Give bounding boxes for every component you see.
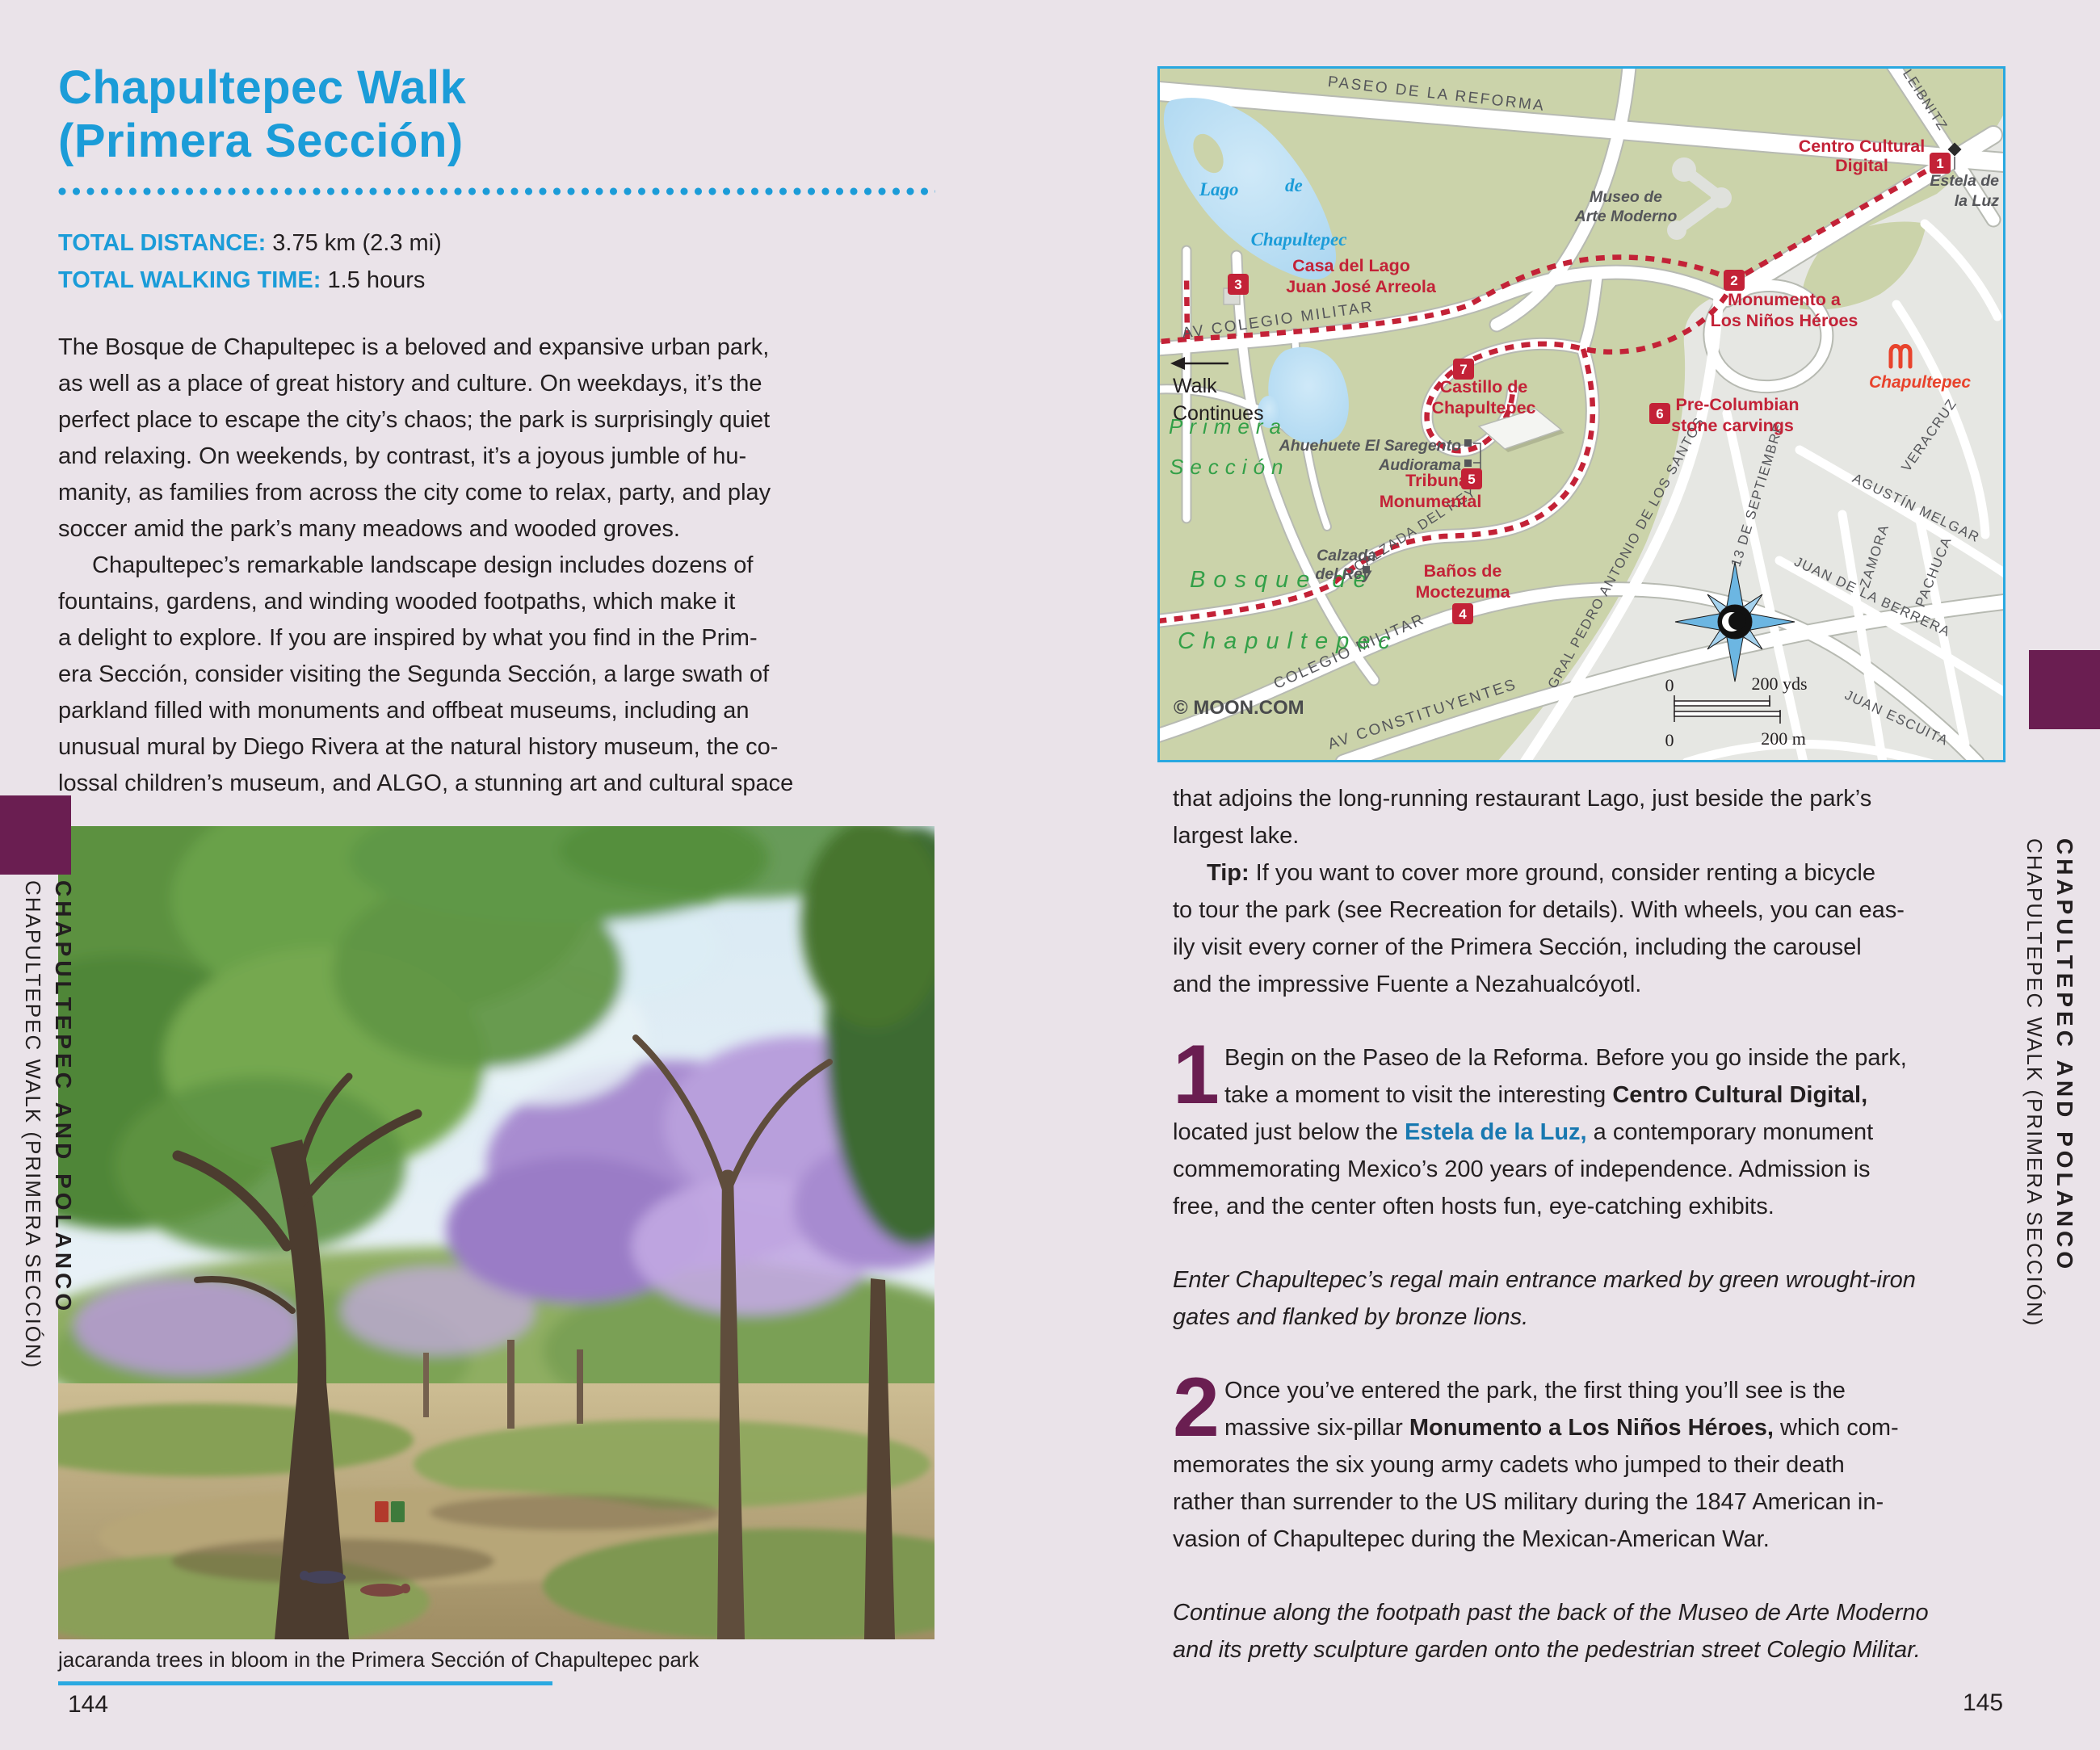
intro-paragraph-1: The Bosque de Chapultepec is a beloved a… (58, 329, 947, 548)
poi-museo-2: Arte Moderno (1574, 208, 1678, 225)
poi-estela-2: la Luz (1955, 192, 2000, 210)
svg-text:5: 5 (1468, 472, 1475, 487)
step-2: 2 Once you’ve entered the park, the firs… (1173, 1372, 2018, 1558)
poi-castillo-2: Chapultepec (1431, 398, 1535, 418)
sidebar-right: CHAPULTEPEC AND POLANCO CHAPULTEPEC WALK… (2019, 838, 2079, 1327)
svg-text:4: 4 (1459, 606, 1467, 622)
poi-banos-1: Baños de (1424, 561, 1502, 581)
chapter-tab-right (2029, 650, 2100, 729)
poi-castillo-1: Castillo de (1440, 377, 1528, 397)
poi-museo-1: Museo de (1590, 188, 1662, 206)
walk-directions: that adjoins the long-running restaurant… (1173, 780, 2018, 1668)
svg-text:Walk: Walk (1173, 375, 1217, 397)
marker-5: 5 (1461, 468, 1482, 489)
step-1-number: 1 (1173, 1039, 1224, 1110)
stat-distance: TOTAL DISTANCE: 3.75 km (2.3 mi) (58, 225, 442, 262)
lake-label-chapultepec: Chapultepec (1251, 229, 1347, 250)
scale-zero-m: 0 (1665, 730, 1674, 750)
caption-rule (58, 1681, 552, 1685)
svg-text:7: 7 (1459, 362, 1467, 377)
marker-2: 2 (1724, 270, 1745, 291)
walk-route-map: PASEO DE LA REFORMA LEIBNITZ AV COLEGIO … (1157, 66, 2005, 762)
poi-banos-2: Moctezuma (1415, 582, 1510, 602)
title-dotted-rule (58, 187, 935, 196)
marker-7: 7 (1453, 359, 1474, 380)
step-2-number: 2 (1173, 1372, 1224, 1443)
step-1-text: Begin on the Paseo de la Reforma. Before… (1173, 1039, 2018, 1225)
transition-italic-1: Enter Chapultepec’s regal main entrance … (1173, 1261, 2018, 1336)
scale-200-m: 200 m (1761, 728, 1806, 749)
guidebook-spread: Chapultepec Walk(Primera Sección) TOTAL … (0, 0, 2100, 1750)
lake-label-lago: Lago (1199, 179, 1239, 199)
sidebar-chapter-right: CHAPULTEPEC AND POLANCO (2050, 838, 2079, 1327)
stat-time: TOTAL WALKING TIME: 1.5 hours (58, 262, 442, 299)
page-number-right: 145 (1963, 1689, 2003, 1717)
sidebar-section-left: CHAPULTEPEC WALK (PRIMERA SECCIÓN) (18, 880, 48, 1369)
foliage (58, 826, 934, 1440)
step-2-text: Once you’ve entered the park, the first … (1173, 1372, 2018, 1558)
svg-text:6: 6 (1656, 406, 1663, 422)
poi-centro-cultural-2: Digital (1835, 156, 1888, 175)
scale-zero-yds: 0 (1665, 675, 1674, 695)
poi-tribuna-1: Tribuna (1405, 471, 1469, 490)
continuation-paragraph: that adjoins the long-running restaurant… (1173, 780, 2018, 854)
poi-tribuna-2: Monumental (1380, 492, 1482, 511)
area-chapultepec: Chapultepec (1178, 628, 1398, 654)
sidebar-left: CHAPULTEPEC AND POLANCO CHAPULTEPEC WALK… (18, 880, 78, 1369)
scale-200-yds: 200 yds (1751, 674, 1807, 694)
chapter-tab-left (0, 795, 71, 875)
poi-calzada-1: Calzada (1317, 547, 1376, 564)
poi-precolumbian-1: Pre-Columbian (1676, 395, 1800, 414)
area-seccion: Sección (1170, 455, 1290, 479)
lake-label-de: de (1285, 175, 1303, 195)
svg-text:1: 1 (1936, 156, 1943, 171)
svg-text:Continues: Continues (1173, 402, 1264, 425)
poi-centro-cultural-1: Centro Cultural (1799, 136, 1925, 156)
intro-paragraph-2: Chapultepec’s remarkable landscape desig… (58, 548, 947, 802)
poi-metro-chapultepec: Chapultepec (1869, 373, 1971, 392)
marker-4: 4 (1452, 603, 1473, 624)
poi-monumento-2: Los Niños Héroes (1711, 311, 1858, 330)
page-number-left: 144 (68, 1691, 108, 1719)
poi-ahuehuete: Ahuehuete El Saregento (1279, 437, 1461, 455)
map-attribution: © MOON.COM (1174, 697, 1304, 719)
jacaranda-photo (58, 826, 934, 1639)
trash-bin-green (391, 1501, 405, 1522)
intro-text: The Bosque de Chapultepec is a beloved a… (58, 329, 947, 802)
page-title: Chapultepec Walk(Primera Sección) (58, 61, 466, 168)
poi-precolumbian-2: stone carvings (1671, 416, 1794, 435)
sidebar-section-right: CHAPULTEPEC WALK (PRIMERA SECCIÓN) (2019, 838, 2050, 1327)
step-1: 1 Begin on the Paseo de la Reforma. Befo… (1173, 1039, 2018, 1225)
tip-paragraph: Tip: If you want to cover more ground, c… (1173, 854, 2018, 1003)
marker-1: 1 (1930, 153, 1951, 174)
marker-6: 6 (1649, 403, 1670, 424)
svg-text:3: 3 (1234, 277, 1241, 292)
poi-monumento-1: Monumento a (1728, 290, 1842, 309)
poi-casa-del-lago-1: Casa del Lago (1292, 256, 1410, 275)
poi-calzada-2: del Rey (1315, 565, 1372, 583)
poi-casa-del-lago-2: Juan José Arreola (1286, 277, 1437, 296)
transition-italic-2: Continue along the footpath past the bac… (1173, 1594, 2018, 1668)
marker-3: 3 (1228, 274, 1249, 295)
walk-stats: TOTAL DISTANCE: 3.75 km (2.3 mi) TOTAL W… (58, 225, 442, 299)
trash-bin-red (375, 1501, 388, 1522)
sidebar-chapter-left: CHAPULTEPEC AND POLANCO (48, 880, 78, 1369)
photo-caption: jacaranda trees in bloom in the Primera … (58, 1647, 699, 1672)
poi-estela-1: Estela de (1930, 172, 1999, 190)
svg-text:2: 2 (1730, 273, 1737, 288)
